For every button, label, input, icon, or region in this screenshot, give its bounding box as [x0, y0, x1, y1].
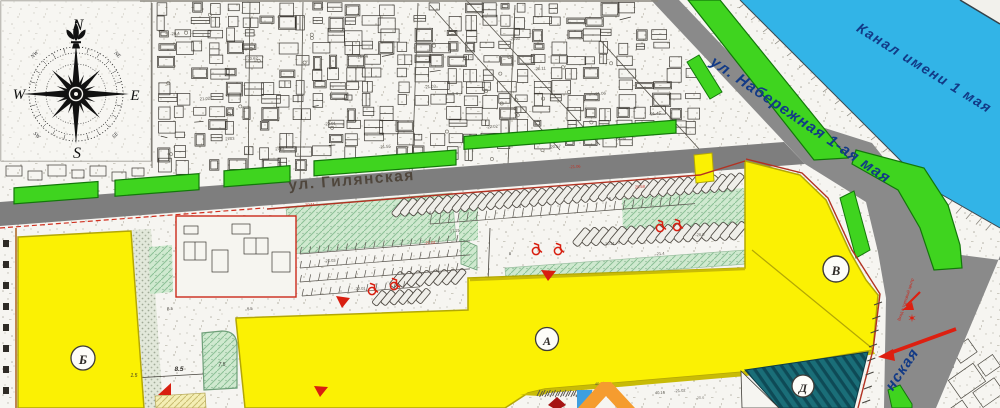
svg-text:-22.02: -22.02 — [486, 124, 499, 130]
svg-text:-20.11: -20.11 — [534, 66, 547, 72]
svg-text:7.5: 7.5 — [219, 362, 226, 368]
svg-text:Д: Д — [798, 381, 808, 395]
svg-text:-20.6: -20.6 — [696, 396, 705, 400]
svg-text:-22.01: -22.01 — [354, 286, 366, 292]
svg-text:20.11: 20.11 — [305, 202, 316, 208]
svg-text:-21.02: -21.02 — [424, 240, 436, 246]
svg-text:-21.06: -21.06 — [569, 164, 581, 170]
svg-text:-20.57: -20.57 — [549, 144, 562, 150]
svg-text:40.16: 40.16 — [655, 390, 666, 396]
svg-text:-21.04: -21.04 — [356, 54, 369, 60]
svg-text:-2102: -2102 — [509, 36, 521, 42]
svg-text:E: E — [129, 88, 139, 104]
svg-text:S: S — [73, 145, 81, 162]
svg-text:3-4: 3-4 — [452, 91, 459, 96]
svg-text:✶: ✶ — [907, 313, 916, 325]
svg-text:20.58: 20.58 — [635, 184, 646, 190]
svg-text:-22.01: -22.01 — [324, 121, 337, 127]
svg-text:Б: Б — [78, 352, 87, 367]
svg-text:W: W — [13, 87, 27, 103]
svg-text:-20.62: -20.62 — [246, 56, 259, 62]
svg-text:-21.4: -21.4 — [655, 251, 665, 257]
svg-text:21.02: 21.02 — [199, 96, 210, 102]
svg-text:-21.03: -21.03 — [424, 84, 437, 90]
svg-text:А: А — [542, 334, 551, 348]
svg-text:17.25: 17.25 — [450, 228, 461, 234]
svg-text:-21.03: -21.03 — [324, 258, 336, 264]
svg-text:-21.06: -21.06 — [594, 91, 607, 97]
svg-text:B.5: B.5 — [167, 306, 174, 311]
svg-text:2702: 2702 — [275, 146, 285, 152]
svg-text:-21.55: -21.55 — [379, 144, 392, 150]
svg-text:-20.4: -20.4 — [170, 31, 181, 37]
svg-text:2703: 2703 — [225, 136, 235, 142]
svg-text:8.5: 8.5 — [174, 366, 183, 373]
svg-text:20.11: 20.11 — [605, 241, 616, 247]
svg-text:-21.45: -21.45 — [649, 111, 662, 117]
svg-text:-20.6: -20.6 — [695, 232, 705, 238]
svg-text:В: В — [831, 263, 841, 278]
svg-text:N: N — [72, 17, 85, 34]
svg-text:-21.02: -21.02 — [674, 388, 686, 394]
svg-text:1.5: 1.5 — [131, 373, 138, 379]
